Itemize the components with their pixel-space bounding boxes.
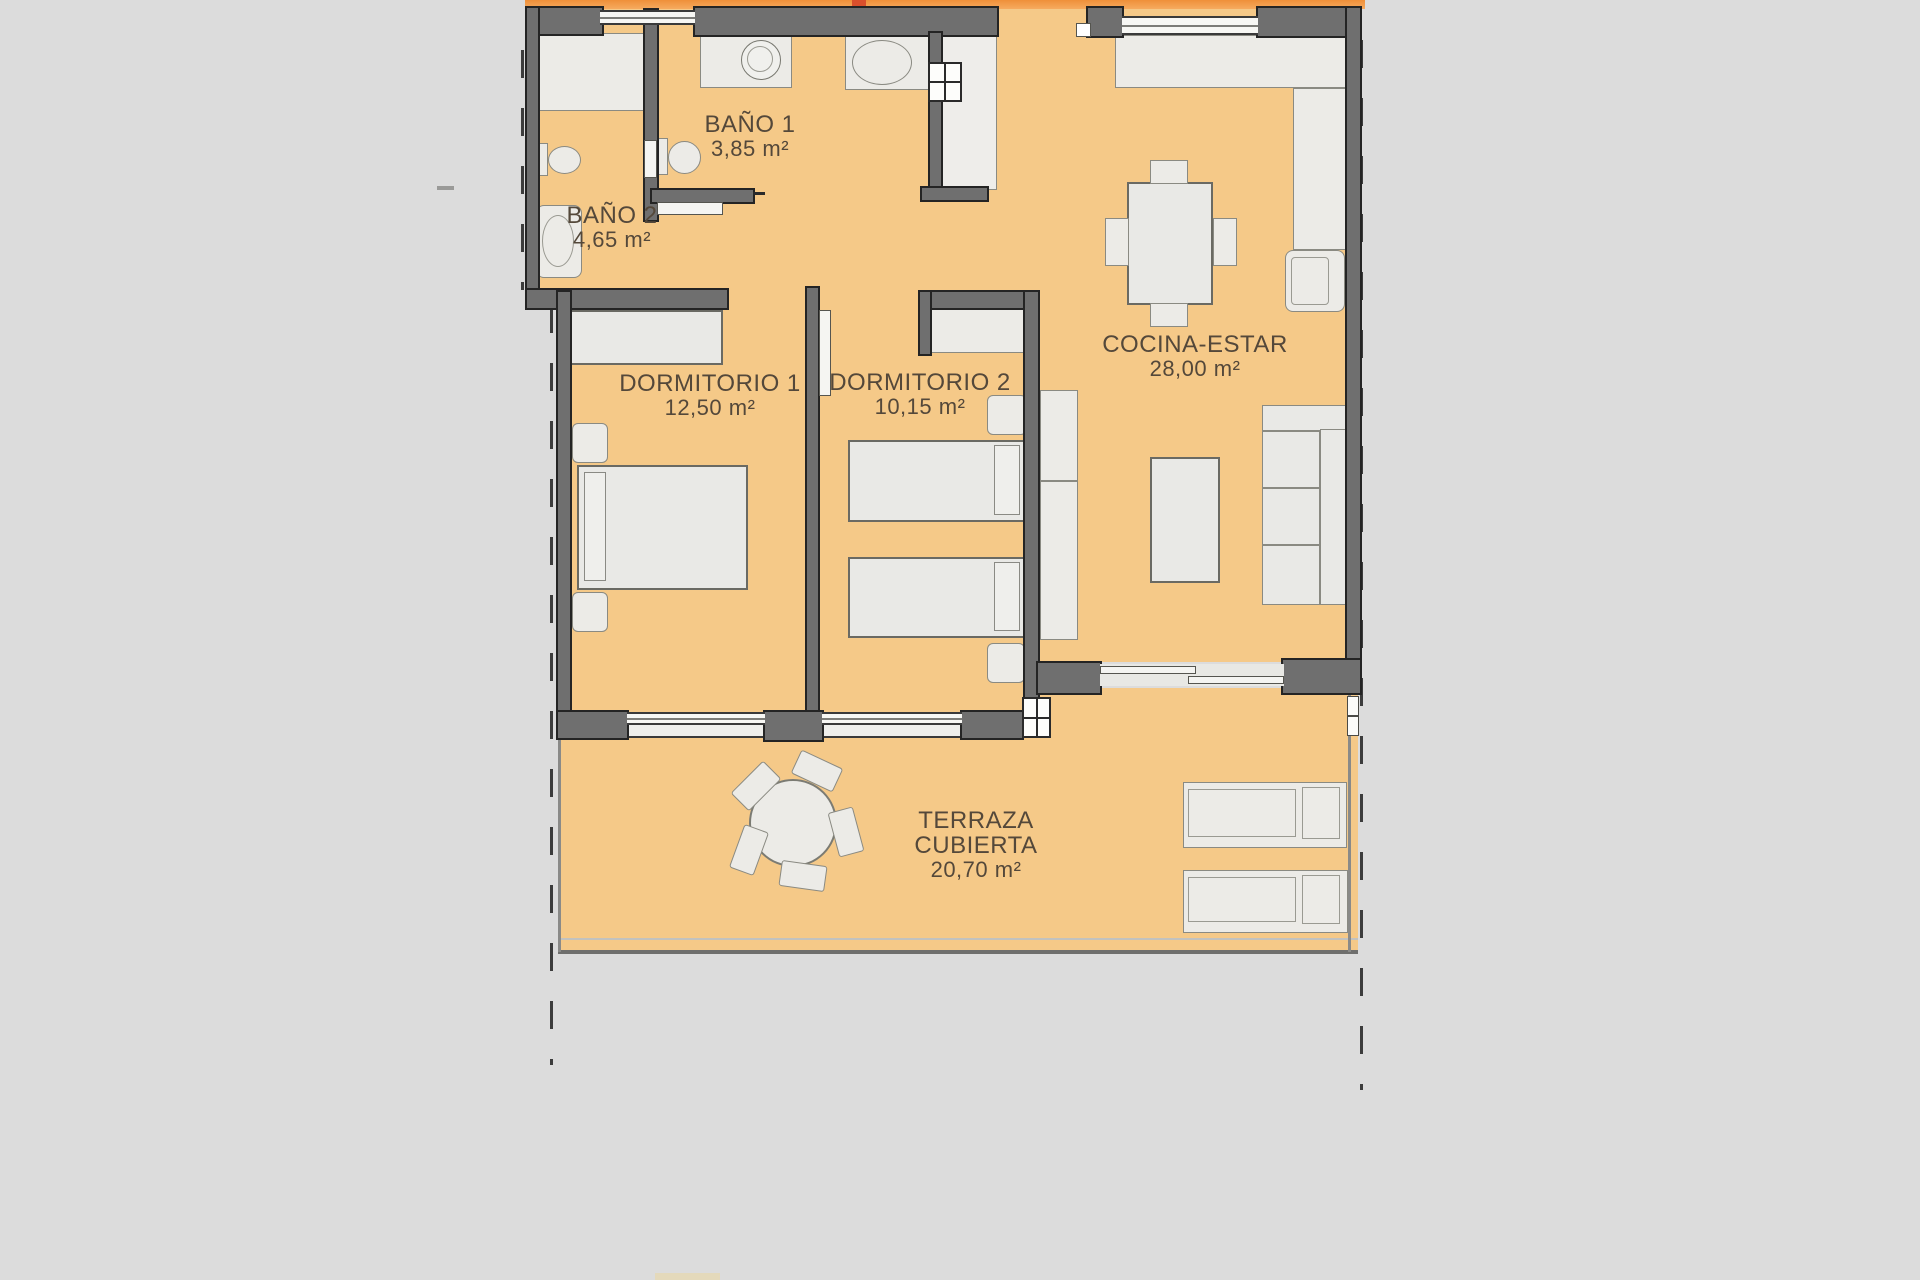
shower-stall-bano1 [941, 33, 997, 190]
room-label-terraza: TERRAZA CUBIERTA 20,70 m² [856, 808, 1096, 882]
terrace-front-line-light [558, 938, 1358, 940]
room-area-cocina: 28,00 m² [1075, 357, 1315, 381]
wall-right [1347, 8, 1360, 693]
pillar-bottom-center [765, 712, 822, 740]
floor-bedroom-strip [562, 660, 1026, 712]
wall-left-lower [558, 292, 570, 712]
room-label-bano2: BAÑO 2 4,65 m² [492, 203, 732, 252]
dining-chair-top [1150, 160, 1188, 184]
terrace-front-line-dark [558, 950, 1358, 954]
room-name-bano2: BAÑO 2 [492, 203, 732, 228]
wall-top-center [695, 8, 997, 35]
coffee-table [1150, 457, 1220, 583]
wall-cocina-bottom-right [1283, 660, 1360, 693]
double-bed-dorm1 [577, 465, 748, 590]
pillar-bottom-left [558, 712, 627, 738]
window-dorm1 [627, 712, 765, 725]
room-name-terraza: TERRAZA CUBIERTA [856, 808, 1096, 858]
room-area-bano2: 4,65 m² [492, 228, 732, 252]
wall-top-left-corner [527, 8, 602, 34]
window-bano2-top [600, 10, 695, 25]
room-name-bano1: BAÑO 1 [630, 112, 870, 137]
room-label-bano1: BAÑO 1 3,85 m² [630, 112, 870, 161]
wall-bano1-foot [922, 188, 987, 200]
room-name-dormitorio1: DORMITORIO 1 [590, 371, 830, 396]
nightstand-dorm2-bottom [987, 643, 1025, 683]
wall-dorm2-top [920, 292, 1032, 308]
sunbed-2 [1183, 870, 1348, 933]
sofa-back [1320, 429, 1348, 605]
window-dorm2 [822, 712, 962, 725]
wall-bano2-bottom [527, 290, 727, 308]
room-area-bano1: 3,85 m² [630, 137, 870, 161]
wall-top-right-corner [1258, 8, 1360, 36]
top-strip-red-accent [852, 0, 866, 6]
pillow-bed1-dorm2 [994, 445, 1020, 515]
sofa [1262, 405, 1348, 605]
sunbed-1 [1183, 782, 1347, 848]
sofa-cushion-2 [1262, 488, 1320, 545]
bottom-faint-mark [655, 1273, 720, 1280]
sliding-door-terrace [1100, 664, 1284, 686]
pillow-dorm1 [584, 472, 606, 581]
terrace-left-edge [558, 740, 561, 952]
dining-chair-right [1213, 218, 1237, 266]
wall-bano1-right [930, 33, 941, 190]
dashed-line-left [550, 305, 553, 1065]
floor-terrace-right [1038, 688, 1358, 740]
sofa-cushion-3 [1262, 545, 1320, 605]
room-label-dormitorio2: DORMITORIO 2 10,15 m² [800, 370, 1040, 419]
wardrobe-dorm1 [570, 310, 723, 365]
wall-dorm2-closet-side [920, 292, 930, 354]
dashed-line-right [1360, 40, 1363, 1090]
corner-column-4pane [1022, 697, 1051, 738]
oval-sink-bano1 [852, 40, 912, 85]
nightstand-dorm1-top [572, 423, 608, 463]
room-area-dormitorio1: 12,50 m² [590, 396, 830, 420]
shower-tray-bano2 [538, 33, 644, 111]
round-sink-bano1 [741, 40, 781, 80]
armchair [1285, 250, 1345, 312]
shower-column-4pane [928, 62, 962, 102]
room-area-terraza: 20,70 m² [856, 858, 1096, 882]
closet-dorm2 [930, 308, 1027, 353]
wall-dorm2-cocina [1025, 292, 1038, 700]
right-wall-end-box [1347, 696, 1359, 736]
toilet-bowl-bano2 [548, 146, 581, 174]
wall-bedroom-divider [807, 288, 818, 728]
pillow-bed2-dorm2 [994, 562, 1020, 631]
dining-table [1127, 182, 1213, 305]
dining-chair-bottom [1150, 303, 1188, 327]
dashed-line-left-upper [521, 50, 524, 290]
window-kitchen [1122, 16, 1258, 35]
wall-entrance-pillar [1088, 8, 1122, 36]
room-area-dormitorio2: 10,15 m² [800, 395, 1040, 419]
left-tick-mark [437, 186, 454, 190]
door-mark-entrance [1076, 23, 1091, 37]
room-label-dormitorio1: DORMITORIO 1 12,50 m² [590, 371, 830, 420]
wall-bano1-vanity [652, 190, 753, 202]
sideboard [1040, 390, 1078, 640]
dining-chair-left [1105, 218, 1129, 266]
pillar-bottom-right [962, 712, 1022, 738]
sofa-arm-top [1262, 405, 1348, 431]
single-bed2-dorm2 [848, 557, 1027, 638]
sofa-cushion-1 [1262, 431, 1320, 488]
room-label-cocina: COCINA-ESTAR 28,00 m² [1075, 332, 1315, 381]
kitchen-counter-right [1293, 88, 1347, 250]
kitchen-counter-top [1115, 35, 1347, 88]
nightstand-dorm1-bottom [572, 592, 608, 632]
room-name-dormitorio2: DORMITORIO 2 [800, 370, 1040, 395]
floor-plan-canvas: BAÑO 1 3,85 m² BAÑO 2 4,65 m² DORMITORIO… [0, 0, 1920, 1280]
single-bed1-dorm2 [848, 440, 1027, 522]
wall-cocina-jog [1038, 663, 1100, 693]
wall-bano1-vanity-tail [753, 192, 765, 195]
room-name-cocina: COCINA-ESTAR [1075, 332, 1315, 357]
